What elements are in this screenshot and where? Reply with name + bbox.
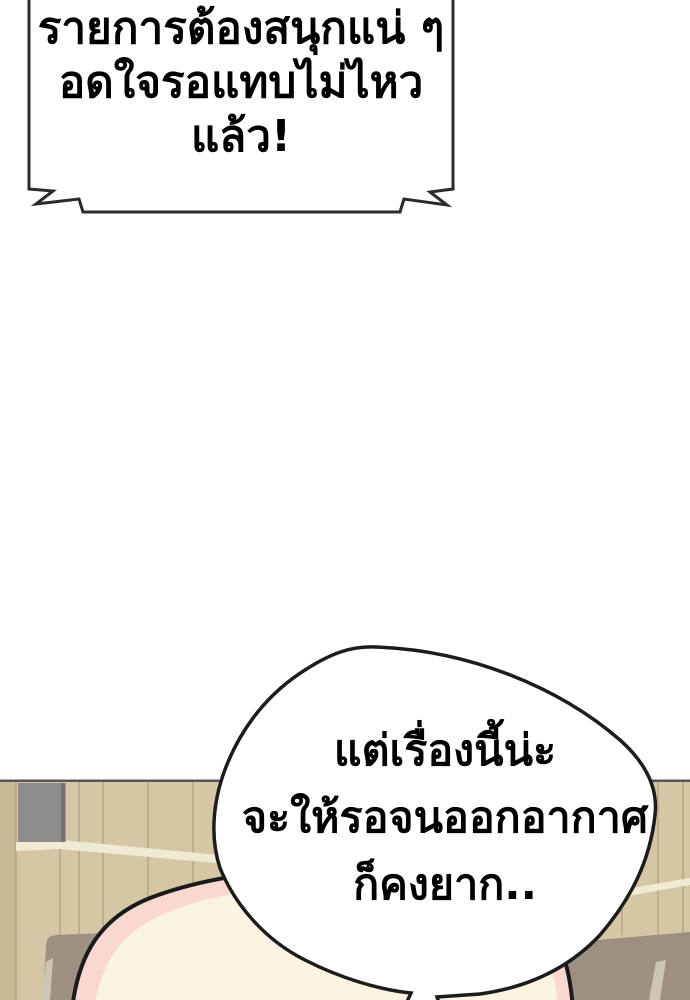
gray-wall-block xyxy=(18,783,65,842)
speech-text-bottom-line1: แต่เรื่องนี้น่ะ xyxy=(240,718,650,785)
gray-wall-block-edge xyxy=(61,783,66,842)
wood-plank-dark xyxy=(0,781,16,1000)
speech-text-top-line2: อดใจรอแทบไม่ไหวแล้ว! xyxy=(29,56,453,164)
comic-panel: รายการต้องสนุกแน่ ๆ อดใจรอแทบไม่ไหวแล้ว!… xyxy=(0,0,690,1000)
speech-text-bottom-line3: ก็คงยาก.. xyxy=(240,852,650,919)
speech-text-top-line1: รายการต้องสนุกแน่ ๆ xyxy=(29,2,453,56)
speech-text-bottom-line2: จะให้รอจนออกอากาศ xyxy=(240,785,650,852)
speech-text-bottom: แต่เรื่องนี้น่ะ จะให้รอจนออกอากาศ ก็คงยา… xyxy=(240,718,650,919)
speech-text-top: รายการต้องสนุกแน่ ๆ อดใจรอแทบไม่ไหวแล้ว! xyxy=(29,2,453,164)
